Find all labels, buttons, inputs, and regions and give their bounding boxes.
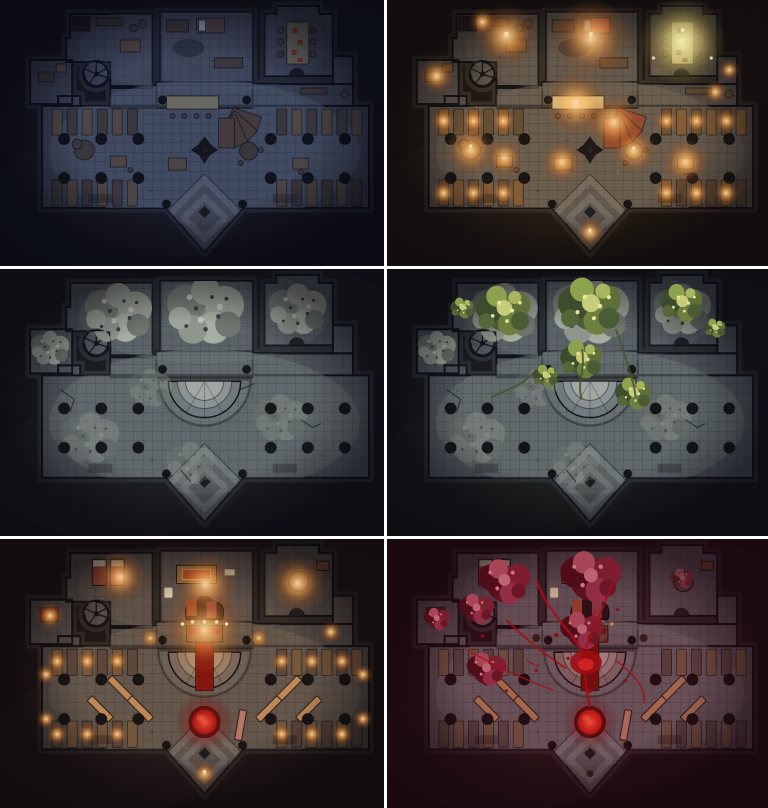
map-panel-tavern-dark[interactable] [0,0,384,266]
map-panel-temple-lit[interactable] [0,539,384,808]
map-panel-temple-blood[interactable] [387,539,768,808]
base-tavern [0,0,384,266]
map-panel-ruins[interactable] [0,269,384,536]
battle-map-temple-blood [387,539,768,808]
map-panel-ruins-overgrown[interactable] [387,269,768,536]
map-panel-tavern-lit[interactable] [387,0,768,266]
base-ruin [0,269,384,536]
ov-blood [387,539,768,808]
battle-map-tavern-dark [0,0,384,266]
battle-map-temple-lit [0,539,384,808]
battle-map-ruins-overgrown [387,269,768,536]
battle-map-ruins [0,269,384,536]
battle-map-tavern-lit [387,0,768,266]
map-variant-grid [0,0,768,808]
